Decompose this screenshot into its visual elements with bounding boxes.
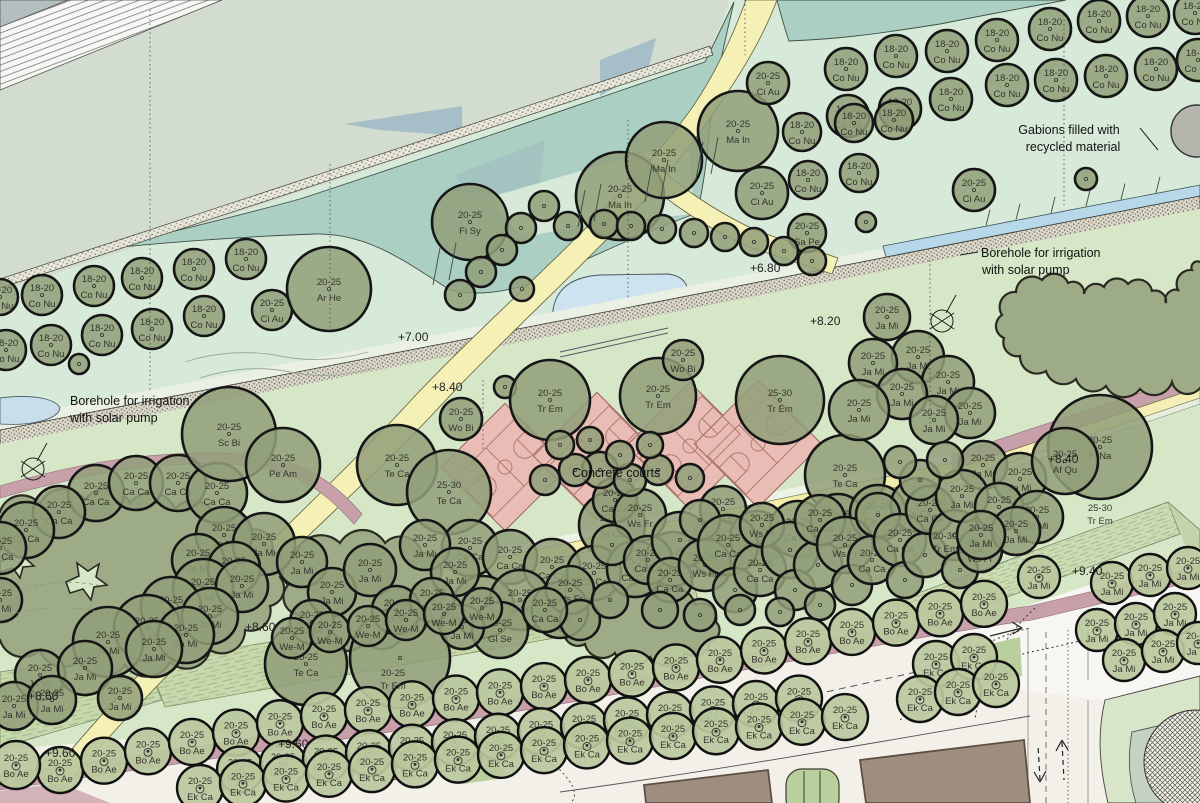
svg-text:Ja Mi: Ja Mi [291, 566, 314, 577]
svg-text:20-25: 20-25 [936, 370, 960, 381]
svg-text:Ja Mi: Ja Mi [0, 604, 11, 615]
svg-text:18-20: 18-20 [1136, 4, 1160, 15]
svg-text:20-25: 20-25 [290, 550, 314, 561]
svg-text:Te Ca: Te Ca [833, 479, 859, 490]
svg-text:20-25: 20-25 [532, 674, 556, 685]
svg-text:Bo Ae: Bo Ae [443, 703, 468, 714]
svg-text:Ja Mi: Ja Mi [1139, 579, 1162, 590]
svg-text:Ja Mi: Ja Mi [959, 417, 982, 428]
svg-text:20-25: 20-25 [489, 743, 513, 754]
svg-text:We-M: We-M [393, 624, 418, 635]
svg-text:18-20: 18-20 [182, 257, 206, 268]
svg-text:18-20: 18-20 [847, 161, 871, 172]
svg-text:Ja Mi: Ja Mi [1101, 587, 1124, 598]
svg-text:Borehole for irrigation: Borehole for irrigation [981, 246, 1101, 260]
svg-text:Ek Ca: Ek Ca [703, 735, 730, 746]
svg-text:Co Nu: Co Nu [1143, 73, 1170, 84]
svg-text:20-25: 20-25 [443, 560, 467, 571]
svg-text:20-25: 20-25 [661, 724, 685, 735]
svg-text:Wo Bi: Wo Bi [670, 364, 695, 375]
svg-text:20-25: 20-25 [540, 555, 564, 566]
svg-text:Bo Ae: Bo Ae [795, 645, 820, 656]
svg-text:with solar pump: with solar pump [981, 263, 1070, 277]
svg-text:20-25: 20-25 [750, 513, 774, 524]
svg-text:20-25: 20-25 [875, 305, 899, 316]
svg-text:Co Nu: Co Nu [1086, 25, 1113, 36]
svg-text:20-25: 20-25 [987, 495, 1011, 506]
svg-text:Co Nu: Co Nu [994, 89, 1021, 100]
svg-text:18-20: 18-20 [234, 247, 258, 258]
svg-text:Ja Mi: Ja Mi [109, 702, 132, 713]
svg-text:Co Nu: Co Nu [1037, 33, 1064, 44]
svg-text:20-25: 20-25 [458, 210, 482, 221]
svg-text:20-25: 20-25 [946, 680, 970, 691]
svg-text:Gl Se: Gl Se [488, 634, 512, 645]
svg-text:20-25: 20-25 [84, 481, 108, 492]
svg-text:Borehole for irrigation: Borehole for irrigation [70, 394, 190, 408]
svg-text:20-25: 20-25 [747, 715, 771, 726]
svg-text:Co Nu: Co Nu [81, 290, 108, 301]
svg-text:20-25: 20-25 [972, 592, 996, 603]
svg-text:Ek Ca: Ek Ca [488, 759, 515, 770]
svg-text:Ja Mi: Ja Mi [891, 398, 914, 409]
svg-text:20-25: 20-25 [358, 558, 382, 569]
svg-text:Bo Ae: Bo Ae [531, 690, 556, 701]
svg-text:+9.60: +9.60 [45, 746, 76, 760]
svg-text:20-25: 20-25 [808, 508, 832, 519]
svg-text:20-25: 20-25 [795, 221, 819, 232]
svg-text:Co Nu: Co Nu [29, 299, 56, 310]
svg-text:Bo Ae: Bo Ae [663, 671, 688, 682]
svg-text:20-25: 20-25 [908, 687, 932, 698]
svg-text:20-25: 20-25 [188, 776, 212, 787]
svg-text:18-20: 18-20 [1038, 17, 1062, 28]
svg-text:Ja Mi: Ja Mi [1086, 634, 1109, 645]
svg-text:Pe Am: Pe Am [269, 469, 297, 480]
svg-text:20-25: 20-25 [922, 408, 946, 419]
svg-text:20-25: 20-25 [470, 596, 494, 607]
svg-text:Ja Mi: Ja Mi [3, 710, 26, 721]
svg-text:20-25: 20-25 [833, 463, 857, 474]
svg-text:Co Nu: Co Nu [181, 273, 208, 284]
svg-text:20-25: 20-25 [1186, 631, 1200, 642]
svg-text:Ja Mi: Ja Mi [862, 367, 885, 378]
svg-text:Bo Ae: Bo Ae [619, 678, 644, 689]
svg-text:Ws Fr: Ws Fr [627, 519, 652, 530]
svg-text:20-25: 20-25 [984, 672, 1008, 683]
svg-text:Co Nu: Co Nu [934, 55, 961, 66]
svg-text:Ja Mi: Ja Mi [41, 704, 64, 715]
svg-text:20-25: 20-25 [1027, 565, 1051, 576]
svg-text:18-20: 18-20 [0, 338, 18, 349]
svg-text:18-20: 18-20 [90, 323, 114, 334]
svg-text:Bo Ae: Bo Ae [3, 769, 28, 780]
svg-text:20-25: 20-25 [136, 739, 160, 750]
svg-text:20-25: 20-25 [432, 602, 456, 613]
svg-text:+8.60: +8.60 [28, 689, 59, 703]
svg-text:Ci Au: Ci Au [757, 87, 780, 98]
svg-text:20-25: 20-25 [312, 704, 336, 715]
svg-text:20-25: 20-25 [1176, 556, 1200, 567]
svg-text:Ek Ca: Ek Ca [230, 787, 257, 798]
svg-text:20-25: 20-25 [1112, 648, 1136, 659]
svg-text:20-25: 20-25 [47, 500, 71, 511]
svg-text:Ja Mi: Ja Mi [1152, 655, 1175, 666]
svg-text:20-25: 20-25 [320, 580, 344, 591]
svg-text:20-25: 20-25 [498, 545, 522, 556]
svg-text:Bo Ae: Bo Ae [707, 664, 732, 675]
svg-text:Ek Ca: Ek Ca [359, 773, 386, 784]
svg-text:Ek Ca: Ek Ca [746, 731, 773, 742]
svg-text:Bo Ae: Bo Ae [575, 684, 600, 695]
svg-text:20-25: 20-25 [790, 710, 814, 721]
svg-text:Te Ca: Te Ca [385, 469, 411, 480]
svg-text:18-20: 18-20 [30, 283, 54, 294]
svg-text:20-25: 20-25 [1008, 467, 1032, 478]
svg-text:Co Nu: Co Nu [1043, 84, 1070, 95]
svg-text:20-25: 20-25 [833, 533, 857, 544]
svg-text:20-25: 20-25 [400, 692, 424, 703]
svg-text:20-25: 20-25 [403, 752, 427, 763]
svg-text:Tr Em: Tr Em [932, 544, 958, 555]
svg-text:25-30: 25-30 [1088, 503, 1112, 514]
svg-text:Co Nu: Co Nu [938, 103, 965, 114]
svg-text:Co Nu: Co Nu [1135, 20, 1162, 31]
svg-text:Ek Ca: Ek Ca [402, 768, 429, 779]
svg-text:Ca Ca: Ca Ca [532, 614, 560, 625]
svg-text:Ci Au: Ci Au [963, 194, 986, 205]
svg-text:20-25: 20-25 [884, 611, 908, 622]
svg-text:+8.40: +8.40 [1048, 452, 1079, 466]
svg-text:Tr Em: Tr Em [1087, 516, 1113, 527]
svg-text:20-25: 20-25 [538, 388, 562, 399]
svg-text:We-M: We-M [469, 612, 494, 623]
svg-text:Ek Ca: Ek Ca [445, 764, 472, 775]
svg-text:20-25: 20-25 [0, 536, 12, 547]
svg-text:20-25: 20-25 [205, 481, 229, 492]
svg-text:20-25: 20-25 [652, 148, 676, 159]
svg-text:20-25: 20-25 [750, 181, 774, 192]
svg-text:+8.40: +8.40 [432, 380, 463, 394]
svg-text:Ek Ca: Ek Ca [832, 721, 859, 732]
svg-text:Ja Mi: Ja Mi [359, 574, 382, 585]
svg-text:20-25: 20-25 [108, 686, 132, 697]
svg-text:Ci Au: Ci Au [261, 314, 284, 325]
svg-text:20-25: 20-25 [317, 762, 341, 773]
svg-text:20-25: 20-25 [252, 532, 276, 543]
svg-text:Tr Em: Tr Em [645, 400, 671, 411]
svg-text:Co Nu: Co Nu [789, 136, 816, 147]
svg-text:Co Nu: Co Nu [984, 44, 1011, 55]
svg-text:20-25: 20-25 [449, 407, 473, 418]
svg-text:Ca Ca: Ca Ca [83, 497, 111, 508]
svg-text:18-20: 18-20 [1186, 48, 1200, 59]
svg-text:Ja Mi: Ja Mi [1113, 664, 1136, 675]
svg-text:20-25: 20-25 [385, 453, 409, 464]
svg-text:20-25: 20-25 [444, 687, 468, 698]
svg-text:Co Nu: Co Nu [795, 184, 822, 195]
svg-text:20-25: 20-25 [533, 598, 557, 609]
svg-text:18-20: 18-20 [995, 73, 1019, 84]
svg-text:20-25: 20-25 [142, 637, 166, 648]
svg-text:Tr Em: Tr Em [537, 404, 563, 415]
svg-text:Ja Mi: Ja Mi [1005, 535, 1028, 546]
svg-text:20-25: 20-25 [969, 523, 993, 534]
svg-text:Co Nu: Co Nu [1093, 80, 1120, 91]
svg-text:Wo Bi: Wo Bi [448, 423, 473, 434]
svg-text:20-25: 20-25 [532, 738, 556, 749]
svg-text:Co Nu: Co Nu [89, 339, 116, 350]
svg-text:20-25: 20-25 [971, 453, 995, 464]
svg-text:20-25: 20-25 [950, 484, 974, 495]
svg-text:Ja Mi: Ja Mi [876, 321, 899, 332]
svg-text:Af Qu: Af Qu [1053, 465, 1077, 476]
svg-text:20-25: 20-25 [458, 536, 482, 547]
svg-text:18-20: 18-20 [842, 111, 866, 122]
svg-text:Te Ca: Te Ca [437, 496, 463, 507]
svg-text:Bo Ae: Bo Ae [751, 654, 776, 665]
svg-text:20-25: 20-25 [1151, 639, 1175, 650]
svg-text:20-25: 20-25 [861, 351, 885, 362]
svg-text:18-20: 18-20 [0, 285, 12, 296]
svg-text:Ar He: Ar He [317, 293, 341, 304]
svg-text:20-25: 20-25 [92, 749, 116, 760]
svg-text:Ek Ca: Ek Ca [273, 783, 300, 794]
svg-text:20-25: 20-25 [268, 711, 292, 722]
svg-text:Gabions filled with: Gabions filled with [1018, 123, 1119, 137]
svg-text:20-25: 20-25 [280, 626, 304, 637]
svg-text:20-25: 20-25 [576, 668, 600, 679]
svg-text:Co Nu: Co Nu [139, 333, 166, 344]
svg-text:20-25: 20-25 [701, 697, 725, 708]
svg-text:Bo Ae: Bo Ae [839, 636, 864, 647]
svg-text:Bo Ae: Bo Ae [179, 746, 204, 757]
svg-text:20-25: 20-25 [752, 638, 776, 649]
svg-text:Co Nu: Co Nu [38, 349, 65, 360]
svg-text:We-M: We-M [317, 636, 342, 647]
svg-text:25-30: 25-30 [437, 480, 461, 491]
svg-text:Co Nu: Co Nu [833, 73, 860, 84]
svg-text:20-25: 20-25 [744, 692, 768, 703]
svg-text:20-25: 20-25 [608, 184, 632, 195]
svg-text:Co Nu: Co Nu [0, 301, 13, 312]
svg-text:Bo Ae: Bo Ae [355, 714, 380, 725]
svg-text:20-25: 20-25 [4, 753, 28, 764]
svg-text:Ma In: Ma In [726, 135, 750, 146]
svg-text:+9.40: +9.40 [1072, 564, 1103, 578]
svg-text:20-25: 20-25 [73, 656, 97, 667]
svg-text:Ja Mi: Ja Mi [143, 653, 166, 664]
svg-text:+9.60: +9.60 [278, 737, 309, 751]
svg-text:Ek Ca: Ek Ca [983, 688, 1010, 699]
svg-text:recycled material: recycled material [1026, 140, 1120, 154]
svg-text:20-25: 20-25 [840, 620, 864, 631]
svg-text:20-25: 20-25 [260, 298, 284, 309]
svg-text:20-25: 20-25 [356, 698, 380, 709]
svg-text:25-30: 25-30 [768, 388, 792, 399]
svg-text:Ek Ca: Ek Ca [531, 754, 558, 765]
svg-text:20-25: 20-25 [558, 578, 582, 589]
svg-text:Ek Ca: Ek Ca [907, 703, 934, 714]
svg-text:18-20: 18-20 [935, 39, 959, 50]
svg-text:+7.00: +7.00 [398, 330, 429, 344]
svg-text:Ja Mi: Ja Mi [1028, 581, 1051, 592]
svg-text:18-20: 18-20 [1044, 68, 1068, 79]
svg-text:20-25: 20-25 [958, 401, 982, 412]
svg-text:20-25: 20-25 [1124, 612, 1148, 623]
svg-text:20-25: 20-25 [212, 523, 236, 534]
svg-text:18-20: 18-20 [39, 333, 63, 344]
svg-text:20-25: 20-25 [360, 757, 384, 768]
svg-text:20-25: 20-25 [394, 608, 418, 619]
svg-text:20-25: 20-25 [833, 705, 857, 716]
svg-text:20-25: 20-25 [231, 771, 255, 782]
svg-text:Bo Ae: Bo Ae [487, 696, 512, 707]
svg-text:Concrete courts: Concrete courts [572, 466, 660, 480]
svg-text:20-25: 20-25 [224, 721, 248, 732]
svg-text:20-25: 20-25 [1085, 618, 1109, 629]
svg-text:18-20: 18-20 [790, 120, 814, 131]
svg-text:Ca Ca: Ca Ca [859, 564, 887, 575]
svg-text:20-25: 20-25 [317, 277, 341, 288]
svg-text:18-20: 18-20 [1094, 64, 1118, 75]
svg-text:Ca Ca: Ca Ca [747, 574, 775, 585]
svg-text:We-M: We-M [279, 642, 304, 653]
svg-text:Ek Ca: Ek Ca [316, 778, 343, 789]
svg-text:20-25: 20-25 [217, 422, 241, 433]
svg-text:Ja Mi: Ja Mi [1125, 628, 1148, 639]
svg-text:20-25: 20-25 [620, 662, 644, 673]
svg-text:20-25: 20-25 [575, 733, 599, 744]
svg-text:Co Nu: Co Nu [846, 177, 873, 188]
svg-text:Ek Ca: Ek Ca [617, 745, 644, 756]
svg-text:18-20: 18-20 [882, 108, 906, 119]
svg-text:20-25: 20-25 [928, 601, 952, 612]
svg-text:20-25: 20-25 [664, 655, 688, 666]
svg-text:20-25: 20-25 [1100, 571, 1124, 582]
svg-text:Ca Ca: Ca Ca [0, 552, 14, 563]
svg-text:20-25: 20-25 [1004, 519, 1028, 530]
svg-text:Bo Ae: Bo Ae [883, 627, 908, 638]
svg-text:18-20: 18-20 [834, 57, 858, 68]
svg-text:20-25: 20-25 [906, 345, 930, 356]
svg-text:Ek Ca: Ek Ca [187, 792, 214, 803]
svg-text:18-20: 18-20 [130, 266, 154, 277]
svg-text:20-25: 20-25 [180, 730, 204, 741]
svg-text:20-25: 20-25 [186, 548, 210, 559]
svg-text:Ek Ca: Ek Ca [660, 740, 687, 751]
svg-text:20-25: 20-25 [413, 533, 437, 544]
svg-text:Sc Bi: Sc Bi [218, 438, 240, 449]
svg-text:Co Nu: Co Nu [0, 354, 19, 365]
svg-text:20-25: 20-25 [318, 620, 342, 631]
svg-text:20-25: 20-25 [708, 648, 732, 659]
svg-text:Co Nu: Co Nu [883, 60, 910, 71]
svg-text:20-25: 20-25 [356, 614, 380, 625]
svg-text:20-25: 20-25 [28, 663, 52, 674]
svg-text:18-20: 18-20 [140, 317, 164, 328]
svg-text:Bo Ae: Bo Ae [971, 608, 996, 619]
svg-text:We-M: We-M [355, 630, 380, 641]
svg-text:20-25: 20-25 [924, 652, 948, 663]
svg-text:20-25: 20-25 [446, 748, 470, 759]
svg-text:18-20: 18-20 [1087, 9, 1111, 20]
svg-text:Co Nu: Co Nu [191, 320, 218, 331]
svg-text:20-25: 20-25 [704, 719, 728, 730]
svg-text:20-25: 20-25 [1138, 563, 1162, 574]
svg-text:Ja Mi: Ja Mi [951, 500, 974, 511]
svg-text:20-25: 20-25 [787, 687, 811, 698]
svg-text:Co Nu: Co Nu [841, 127, 868, 138]
svg-text:20-25: 20-25 [962, 645, 986, 656]
svg-text:Fi Sy: Fi Sy [459, 226, 481, 237]
svg-text:Ja Mi: Ja Mi [970, 539, 993, 550]
svg-text:Co Nu: Co Nu [233, 263, 260, 274]
svg-text:+8.60: +8.60 [245, 620, 276, 634]
svg-text:We-M: We-M [431, 618, 456, 629]
svg-text:Ek Ca: Ek Ca [574, 749, 601, 760]
svg-text:18-20: 18-20 [192, 304, 216, 315]
svg-text:Ja Mi: Ja Mi [848, 414, 871, 425]
svg-text:20-25: 20-25 [96, 630, 120, 641]
svg-text:20-25: 20-25 [488, 680, 512, 691]
svg-text:20-25: 20-25 [628, 503, 652, 514]
svg-text:20-25: 20-25 [890, 382, 914, 393]
svg-text:20-25: 20-25 [962, 178, 986, 189]
svg-text:20-25: 20-25 [756, 71, 780, 82]
svg-text:Ci Au: Ci Au [751, 197, 774, 208]
svg-text:Tr Em: Tr Em [767, 404, 793, 415]
svg-text:20-25: 20-25 [726, 119, 750, 130]
svg-text:18-20: 18-20 [985, 28, 1009, 39]
svg-text:Ma In: Ma In [652, 164, 676, 175]
svg-text:20-25: 20-25 [646, 384, 670, 395]
svg-text:20-25: 20-25 [381, 668, 405, 679]
svg-text:20-25: 20-25 [671, 348, 695, 359]
svg-text:20-25: 20-25 [271, 453, 295, 464]
svg-text:20-25: 20-25 [1163, 602, 1187, 613]
svg-text:18-20: 18-20 [1183, 1, 1200, 12]
svg-text:Ja Mi: Ja Mi [923, 424, 946, 435]
svg-text:20-25: 20-25 [888, 528, 912, 539]
svg-text:Ja Mi: Ja Mi [414, 549, 437, 560]
svg-text:18-20: 18-20 [82, 274, 106, 285]
svg-text:Bo Ae: Bo Ae [47, 774, 72, 785]
svg-text:Bo Ae: Bo Ae [135, 755, 160, 766]
svg-text:Co Nu: Co Nu [1182, 17, 1200, 28]
svg-text:Co Nu: Co Nu [1185, 64, 1200, 75]
svg-text:20-25: 20-25 [2, 694, 26, 705]
svg-text:20-25: 20-25 [618, 729, 642, 740]
svg-text:Bo Ae: Bo Ae [399, 708, 424, 719]
svg-text:20-25: 20-25 [274, 767, 298, 778]
svg-text:Co Nu: Co Nu [881, 124, 908, 135]
svg-text:Te Ca: Te Ca [294, 668, 320, 679]
svg-text:Co Nu: Co Nu [129, 282, 156, 293]
svg-text:18-20: 18-20 [796, 168, 820, 179]
svg-text:18-20: 18-20 [884, 44, 908, 55]
svg-text:+6.80: +6.80 [750, 261, 781, 275]
svg-text:Tr Em: Tr Em [380, 681, 406, 692]
svg-text:Ja Mi: Ja Mi [1177, 572, 1200, 583]
svg-text:18-20: 18-20 [1144, 57, 1168, 68]
svg-text:Bo Ae: Bo Ae [91, 765, 116, 776]
svg-text:with solar pump: with solar pump [69, 411, 158, 425]
svg-text:Bo Ae: Bo Ae [927, 617, 952, 628]
svg-text:20-25: 20-25 [796, 629, 820, 640]
svg-text:18-20: 18-20 [939, 87, 963, 98]
svg-text:20-25: 20-25 [847, 398, 871, 409]
